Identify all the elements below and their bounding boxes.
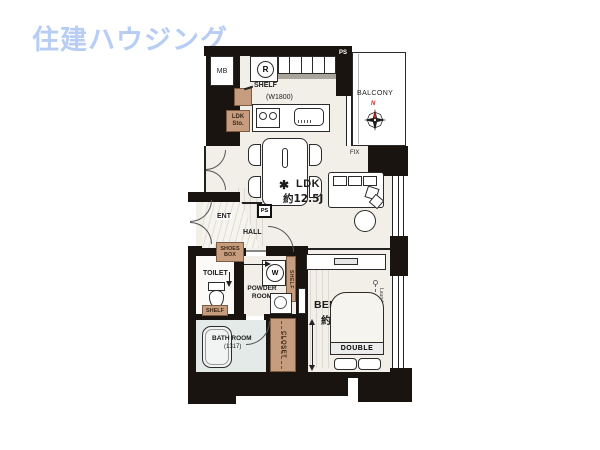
powder-door-line (246, 250, 266, 252)
kitchen-sink (294, 108, 324, 126)
toilet-shelf-label: SHELF (206, 308, 224, 314)
meter-box-label: MB (217, 68, 228, 75)
toilet-door-arrow-head (226, 281, 232, 287)
pillow (334, 358, 357, 370)
ps-top-label: PS (339, 50, 347, 56)
sofa-cushion (348, 176, 362, 186)
refrigerator-space: R (250, 56, 278, 82)
north-label: N (371, 101, 375, 107)
wall-bottom-right (358, 372, 408, 402)
wall-right-pillar (390, 236, 408, 276)
compass-icon (364, 109, 386, 131)
ldk-storage-label: LDK Sto. (228, 114, 248, 128)
vanity-sink-icon (274, 296, 287, 309)
powder-shelf-label: SHELF (288, 270, 294, 289)
balcony-inner-line (358, 54, 359, 144)
sliding-door-panel (298, 288, 306, 314)
closet-door-arrow (312, 324, 313, 366)
bath-size-label: (1317) (224, 344, 241, 350)
counter-width-label: (W1800) (266, 94, 293, 101)
toilet-label: TOILET (203, 270, 228, 277)
company-logo: 住建ハウジング (32, 18, 228, 57)
ps-hall-label: PS (261, 208, 268, 214)
closet-door-arrow-down (309, 365, 315, 371)
closet-pole-line (281, 321, 282, 369)
meter-box: MB (210, 56, 234, 86)
burner-icon (269, 112, 277, 120)
upper-cabinets (278, 56, 336, 74)
laundry-pole-end (373, 280, 378, 285)
wall-top (204, 46, 336, 56)
shoes-box: SHOES BOX (216, 242, 244, 262)
window-bedroom-right (392, 276, 404, 368)
closet-door-arrow-up (309, 319, 315, 325)
ldk-name: LDK (296, 178, 320, 190)
window-ldk-right (392, 176, 404, 236)
dining-chair (248, 176, 261, 198)
fix-window (346, 96, 352, 146)
bed-type-label: DOUBLE (341, 345, 374, 352)
shoes-box-label: SHOES BOX (218, 246, 242, 258)
wall-bottom-left-ext (188, 372, 236, 404)
tv (334, 258, 358, 265)
wall-bottom-notch (348, 378, 358, 404)
pillow (358, 358, 381, 370)
ps-hall-box: PS (257, 204, 272, 218)
fix-label: FIX (350, 150, 359, 156)
powder-door-arrow-head (265, 261, 271, 267)
burner-icon (259, 112, 267, 120)
sofa-cushion (363, 176, 377, 186)
floor-plan-page: 住建ハウジング BALCONY N (0, 0, 600, 450)
wall-bedroom-top (308, 248, 392, 250)
round-table (354, 210, 376, 232)
ldk-storage: LDK Sto. (226, 110, 250, 132)
plant-icon: ✱ (279, 178, 289, 192)
bed-foot-band: DOUBLE (330, 342, 384, 355)
hall-label: HALL (243, 229, 262, 236)
toilet-shelf: SHELF (202, 305, 228, 316)
bed (330, 292, 384, 344)
powder-door-arrow (244, 264, 266, 265)
balcony-label: BALCONY (357, 90, 393, 97)
cabinet-strip (278, 74, 336, 79)
ent-label: ENT (216, 213, 232, 220)
closet: CLOSET (270, 318, 296, 372)
faucet-icon (298, 120, 312, 123)
ldk-size: 約12.5J (283, 191, 323, 206)
pendant-light (282, 148, 288, 168)
kitchen-shelf (234, 88, 252, 106)
dining-chair (309, 144, 322, 166)
kitchen-shelf-label: SHELF (254, 82, 277, 89)
sofa-cushion (333, 176, 347, 186)
dining-chair (248, 144, 261, 166)
balcony-area (352, 52, 406, 146)
refrigerator-mark: R (257, 61, 274, 78)
